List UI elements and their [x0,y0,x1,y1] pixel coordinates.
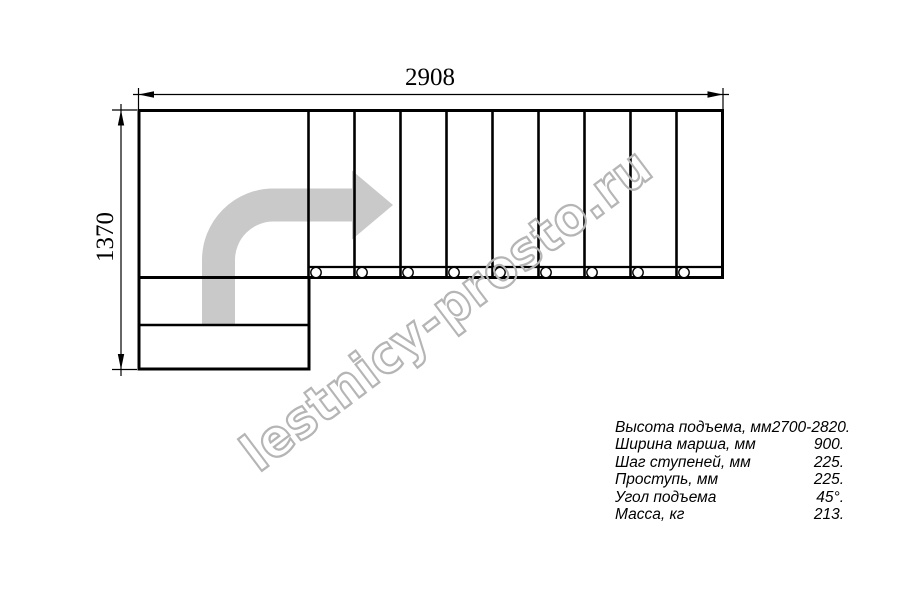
direction-arrow-icon [219,171,394,326]
width-dimension-label: 2908 [405,64,455,92]
spec-label: Ширина марша, мм [615,436,756,453]
bolt-hole-icon [403,267,413,277]
spec-table: Высота подъема, мм 2700-2820. Ширина мар… [615,419,844,523]
spec-row-step-pitch: Шаг ступеней, мм 225. [615,454,844,471]
dim-arrowhead-bottom-icon [118,354,124,370]
staircase-blueprint: 2908 1370 lestnicy-prosto.ru Высота подъ… [0,0,900,600]
height-dimension-label: 1370 [92,212,120,262]
spec-label: Масса, кг [615,506,684,523]
bolt-hole-icon [311,267,321,277]
spec-label: Шаг ступеней, мм [615,454,751,471]
spec-value: 900. [814,436,844,453]
bolt-hole-icon [495,267,505,277]
spec-row-height: Высота подъема, мм 2700-2820. [615,419,844,436]
spec-value: 45°. [816,489,844,506]
dim-arrowhead-right-icon [708,91,724,97]
direction-arrow-head [352,171,393,240]
bolt-hole-icon [679,267,689,277]
dim-arrowhead-left-icon [139,91,155,97]
dim-arrowhead-top-icon [118,110,124,126]
spec-label: Высота подъема, мм [615,419,772,436]
spec-value: 225. [814,471,844,488]
bolt-hole-icon [541,267,551,277]
spec-value: 225. [814,454,844,471]
spec-row-flight-width: Ширина марша, мм 900. [615,436,844,453]
direction-arrow-shaft [219,205,353,325]
spec-row-mass: Масса, кг 213. [615,506,844,523]
spec-value: 2700-2820. [772,419,850,436]
spec-label: Проступь, мм [615,471,718,488]
spec-label: Угол подъема [615,489,716,506]
spec-row-angle: Угол подъема 45°. [615,489,844,506]
bolt-hole-icon [587,267,597,277]
bolt-hole-icon [449,267,459,277]
spec-row-tread-depth: Проступь, мм 225. [615,471,844,488]
bolt-hole-icon [357,267,367,277]
spec-value: 213. [814,506,844,523]
bolt-hole-icon [633,267,643,277]
